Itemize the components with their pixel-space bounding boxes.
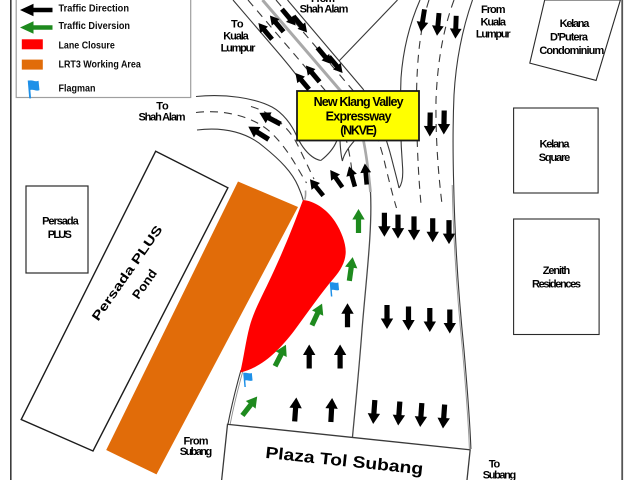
svg-text:Flagman: Flagman — [59, 84, 96, 95]
svg-text:Kelana: Kelana — [560, 18, 591, 30]
svg-text:Condominium: Condominium — [539, 45, 604, 57]
svg-text:Zenith: Zenith — [543, 265, 571, 277]
svg-text:LRT3 Working Area: LRT3 Working Area — [59, 60, 142, 71]
svg-text:Square: Square — [539, 152, 571, 164]
svg-text:Lumpur: Lumpur — [476, 28, 512, 40]
svg-text:Kelana: Kelana — [540, 139, 571, 151]
svg-text:To: To — [231, 18, 244, 30]
svg-text:Lumpur: Lumpur — [221, 43, 257, 55]
svg-text:New Klang Valley: New Klang Valley — [314, 95, 404, 109]
svg-text:Kuala: Kuala — [223, 31, 249, 43]
svg-text:Subang: Subang — [483, 470, 517, 480]
svg-text:D'Putera: D'Putera — [550, 31, 589, 43]
svg-text:From: From — [481, 4, 506, 16]
svg-text:Traffic Diversion: Traffic Diversion — [59, 21, 131, 32]
svg-text:PLUS: PLUS — [48, 229, 72, 241]
svg-text:Traffic Direction: Traffic Direction — [59, 4, 130, 15]
svg-text:Expressway: Expressway — [326, 110, 392, 124]
svg-text:Subang: Subang — [180, 446, 213, 458]
svg-text:Residences: Residences — [532, 279, 581, 291]
svg-text:Shah Alam: Shah Alam — [300, 3, 349, 15]
svg-text:Persada: Persada — [42, 216, 79, 228]
svg-text:Lane Closure: Lane Closure — [59, 40, 116, 51]
svg-text:Kuala: Kuala — [481, 16, 507, 28]
svg-text:(NKVE): (NKVE) — [340, 124, 377, 138]
svg-text:Shah Alam: Shah Alam — [138, 111, 185, 123]
